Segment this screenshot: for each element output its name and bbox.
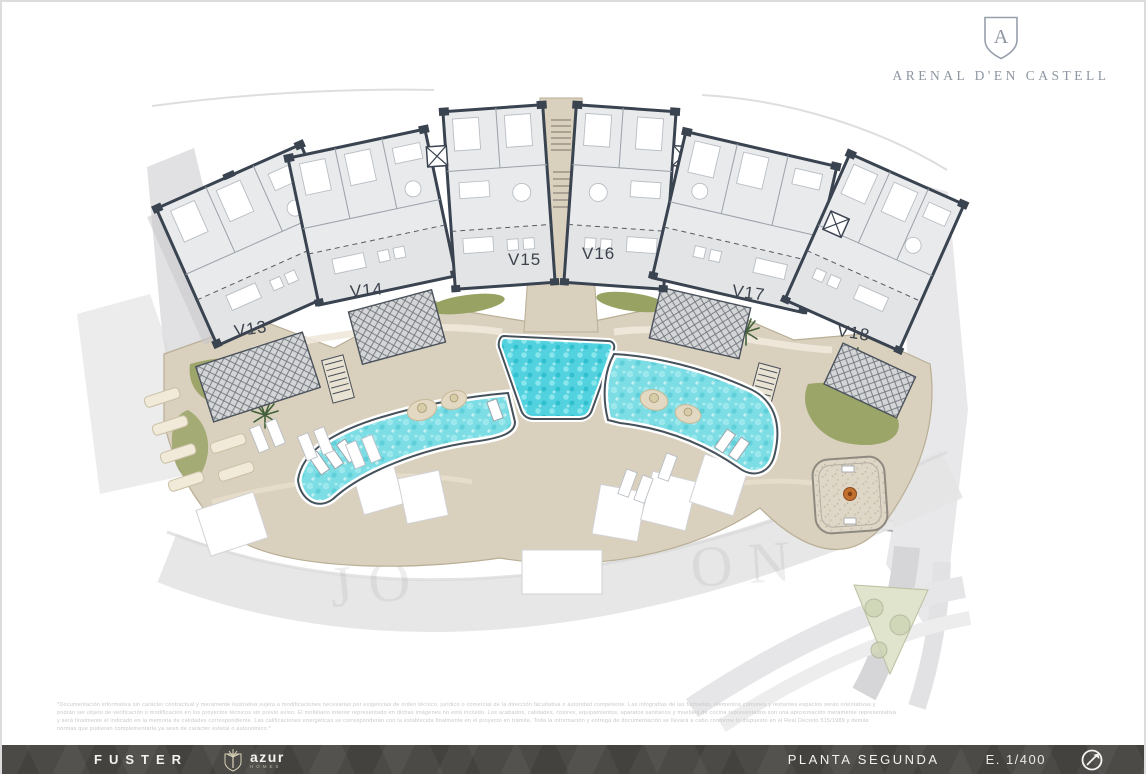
azur-homes-label: HOMES xyxy=(250,765,285,770)
palm-badge-icon xyxy=(222,748,244,772)
unit-label-v15: V15 xyxy=(508,250,541,269)
plan-title: PLANTA SEGUNDA xyxy=(788,752,940,767)
unit-label-v17: V17 xyxy=(731,281,767,304)
svg-text:A: A xyxy=(994,26,1009,48)
fuster-logo: FUSTER xyxy=(94,752,188,767)
disclaimer-line: normas que pudieran complementarla ya se… xyxy=(57,725,1104,733)
unit-label-v14: V14 xyxy=(349,279,384,301)
brand-logo: A ARENAL D'EN CASTELL xyxy=(886,16,1116,84)
floorplan-page: JO ON xyxy=(0,0,1146,774)
legal-disclaimer: *Documentación informativa sin carácter … xyxy=(57,701,1104,733)
shield-monogram-icon: A xyxy=(982,16,1020,60)
azur-wordmark: azur xyxy=(250,750,285,764)
azur-logo: azur HOMES xyxy=(222,748,285,772)
disclaimer-line: *Documentación informativa sin carácter … xyxy=(57,701,1104,709)
fountain-plaza xyxy=(812,456,889,535)
footer-bar: FUSTER azur HOMES PLANTA SEGUNDA E. 1/40… xyxy=(2,745,1144,774)
disclaimer-line: y será finalmente el indicado en la memo… xyxy=(57,717,1104,725)
brand-name: ARENAL D'EN CASTELL xyxy=(886,68,1116,84)
site-plan: JO ON xyxy=(2,2,1146,747)
plan-scale: E. 1/400 xyxy=(986,752,1046,767)
north-compass-icon xyxy=(1080,748,1104,772)
svg-text:ON: ON xyxy=(688,527,808,600)
disclaimer-line: podrán ser objeto de verificación o modi… xyxy=(57,709,1104,717)
unit-label-v16: V16 xyxy=(582,244,615,263)
